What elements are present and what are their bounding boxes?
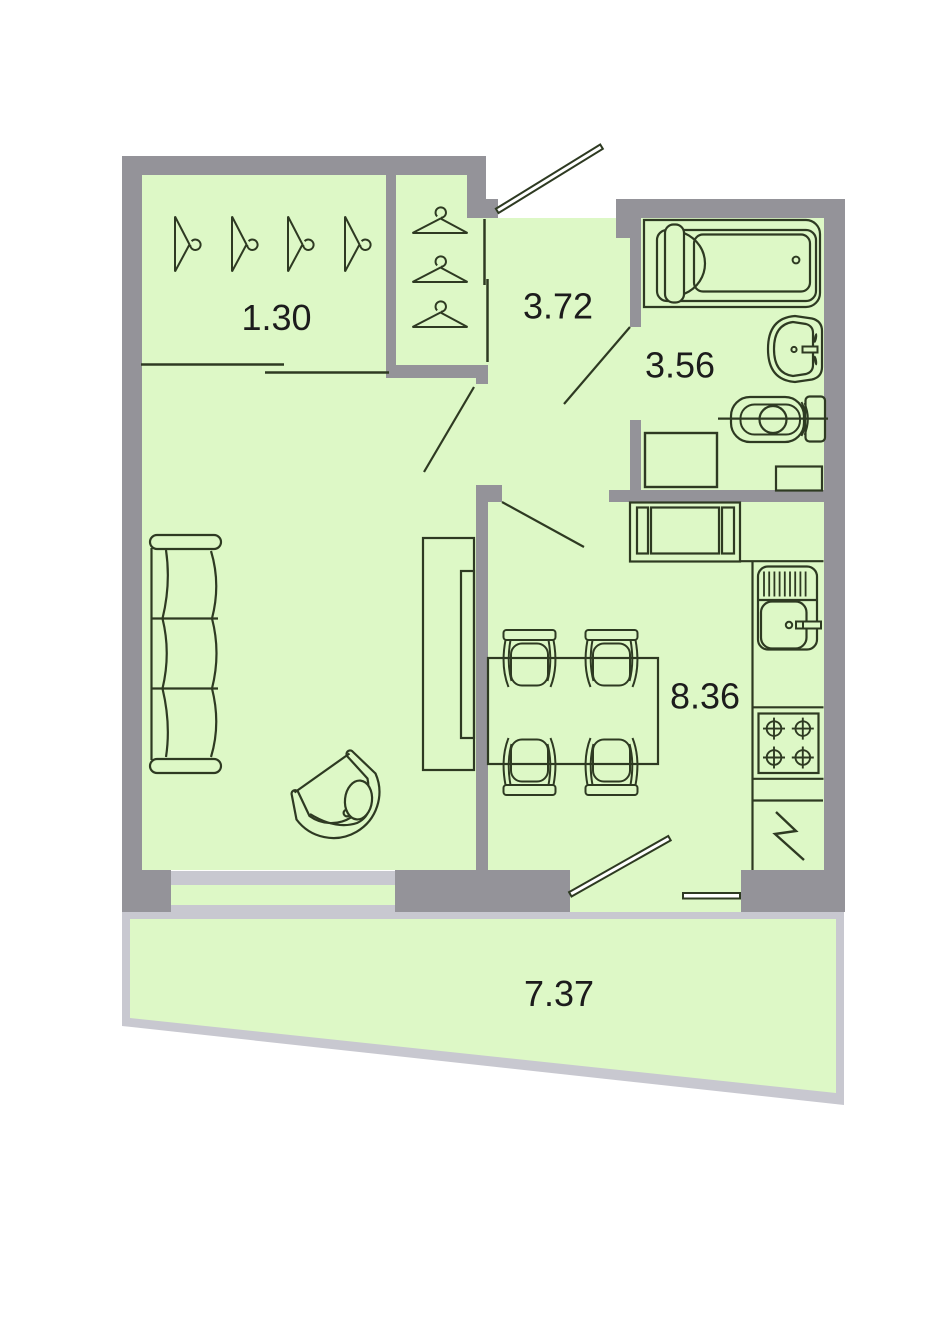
svg-text:7.37: 7.37 [524, 973, 594, 1014]
svg-text:8.36: 8.36 [670, 676, 740, 717]
svg-text:1.30: 1.30 [241, 297, 311, 338]
svg-text:3.72: 3.72 [523, 286, 593, 327]
svg-text:3.56: 3.56 [645, 345, 715, 386]
